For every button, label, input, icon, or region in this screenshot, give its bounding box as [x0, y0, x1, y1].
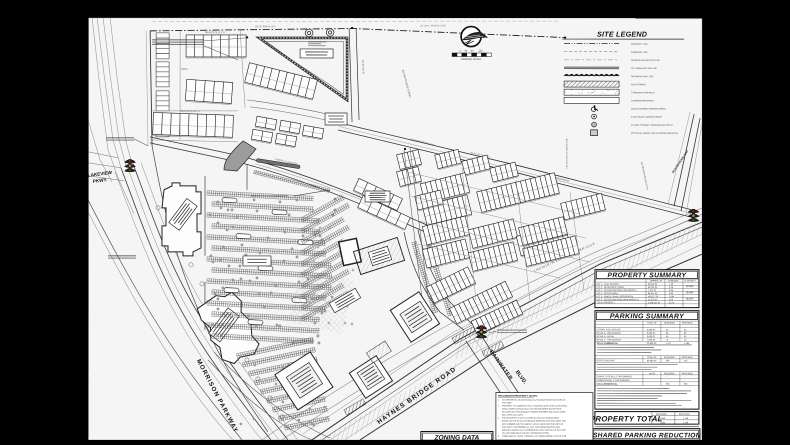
svg-text:18" CURB & GUTTER LINE: 18" CURB & GUTTER LINE — [631, 68, 657, 70]
svg-text:LOT 6 - DETENTION POND (AND: LOT 6 - DETENTION POND (AND AMENITY) — [596, 298, 639, 301]
svg-text:65,340 SF: 65,340 SF — [648, 284, 658, 286]
svg-text:RETAINING WALL LINE: RETAINING WALL LINE — [631, 75, 654, 78]
svg-text:STANDARD CONCRETE: STANDARD CONCRETE — [631, 91, 655, 94]
svg-text:TOWNS LOTS (ALL 2 CAR GARAGE): TOWNS LOTS (ALL 2 CAR GARAGE) — [596, 375, 632, 378]
svg-text:(E) SAN. SEWER ESMT: (E) SAN. SEWER ESMT — [420, 25, 447, 28]
svg-text:FUTURE COMPACT PARKING PER COU: FUTURE COMPACT PARKING PER COUNT — [631, 124, 674, 127]
svg-text:LOT 5 - SINGLE FAMILY RESIDE: LOT 5 - SINGLE FAMILY RESIDENTIAL — [596, 295, 634, 298]
svg-text:OFFICE BUILDING: OFFICE BUILDING — [596, 360, 614, 362]
svg-text:THE PROPERTY IS NOT LOCATED IN: THE PROPERTY IS NOT LOCATED IN A FLOOD H… — [502, 417, 560, 420]
svg-text:EASEMENT LINE: EASEMENT LINE — [631, 51, 648, 54]
svg-text:0 30 60 120: 0 30 60 120 — [460, 50, 484, 53]
svg-text:5,000 SF: 5,000 SF — [647, 329, 656, 331]
svg-text:SAID MAP IS SEPTEMBER 18, 2013: SAID MAP IS SEPTEMBER 18, 2013. THE DETE… — [502, 426, 561, 429]
svg-text:1,563: 1,563 — [660, 422, 666, 424]
svg-text:PROVIDED: PROVIDED — [679, 414, 690, 416]
svg-text:FACILITIES AND LINES.: FACILITIES AND LINES. — [502, 414, 524, 417]
svg-text:POTENTIAL SPACE FOR OUTDOOR AM: POTENTIAL SPACE FOR OUTDOOR AMENITIES — [631, 132, 678, 135]
svg-text:UNITS: UNITS — [649, 373, 656, 375]
svg-text:PARKING SUMMARY: PARKING SUMMARY — [610, 313, 685, 320]
svg-text:SHARED PARKING REDUCTION: SHARED PARKING REDUCTION — [593, 432, 701, 439]
svg-text:EV/EV READY PARKING SPACE: EV/EV READY PARKING SPACE — [631, 116, 663, 119]
svg-text:TERRACES (ALL 1 CAR GARAGE): TERRACES (ALL 1 CAR GARAGE) — [596, 379, 629, 382]
svg-text:1,563: 1,563 — [660, 418, 666, 420]
svg-text:PRIVATE ALLEY 'C': PRIVATE ALLEY 'C' — [180, 110, 201, 113]
svg-text:THERE ARE NO LAKES, STREAMS, O: THERE ARE NO LAKES, STREAMS, OR OTHER WA… — [502, 435, 567, 438]
svg-text:PRELIMINARY/PROPERTY NOTES:: PRELIMINARY/PROPERTY NOTES: — [498, 395, 538, 398]
svg-text:1,748: 1,748 — [683, 422, 689, 424]
svg-text:BASED ON THE FLOOD INSURANCE R: BASED ON THE FLOOD INSURANCE RATE MAP FO… — [502, 420, 567, 423]
svg-text:88,427 SF: 88,427 SF — [648, 293, 658, 295]
svg-text:30.4%: 30.4% — [686, 290, 694, 294]
svg-text:(E) R/W DEDICATION EXHIBIT: (E) R/W DEDICATION EXHIBIT — [565, 138, 568, 169]
svg-text:PRIVATE ALLEY 'A': PRIVATE ALLEY 'A' — [205, 31, 226, 34]
svg-text:1,748: 1,748 — [683, 418, 689, 420]
svg-text:23.75: 23.75 — [669, 302, 675, 304]
svg-text:UTILITIES AND THE PRIMARY POWE: UTILITIES AND THE PRIMARY POWER EASEMENT… — [502, 411, 566, 414]
svg-text:SETBACK AND BUFFER LINE: SETBACK AND BUFFER LINE — [631, 59, 660, 62]
svg-text:REQUIRED: REQUIRED — [656, 414, 667, 416]
svg-text:APPROX. SF: APPROX. SF — [650, 280, 663, 283]
svg-text:20' ALLEY 'B': 20' ALLEY 'B' — [361, 60, 365, 75]
svg-text:RETAIL B - RETAIL: RETAIL B - RETAIL — [596, 335, 615, 338]
svg-text:ADA ACCESSIBLE PARKING SPACE: ADA ACCESSIBLE PARKING SPACE — [631, 108, 667, 111]
svg-text:459,277 SF: 459,277 SF — [648, 296, 659, 298]
svg-text:PROVIDED: PROVIDED — [682, 373, 693, 375]
svg-text:10.54: 10.54 — [669, 296, 675, 298]
svg-text:GRAPHIC SCALE: GRAPHIC SCALE — [461, 58, 482, 61]
svg-text:TOTAL COMMERCIAL: TOTAL COMMERCIAL — [596, 342, 618, 345]
svg-text:LOT 2 - RETAIL/REST. AREA: LOT 2 - RETAIL/REST. AREA — [596, 286, 624, 289]
svg-text:1,018,127 SF: 1,018,127 SF — [648, 302, 661, 304]
svg-text:TOTAL PROPERTY: TOTAL PROPERTY — [596, 301, 615, 304]
svg-text:MADE BY GRAPHICALLY DETERMINI: MADE BY GRAPHICALLY DETERMINING THE POSI… — [502, 429, 567, 432]
svg-text:ON SAID FIRM MAPS UNLESS OTHER: ON SAID FIRM MAPS UNLESS OTHERWISE NOTED… — [502, 432, 550, 435]
svg-text:9,000 SF: 9,000 SF — [647, 336, 656, 338]
svg-text:1,185: 1,185 — [684, 343, 690, 345]
svg-text:SITE LEGEND: SITE LEGEND — [597, 30, 647, 39]
svg-text:7,371 SF: 7,371 SF — [648, 290, 657, 292]
svg-text:ACREAGE: ACREAGE — [668, 280, 679, 283]
svg-text:7,500 SF: 7,500 SF — [647, 340, 656, 342]
svg-text:15,279 SF: 15,279 SF — [648, 299, 658, 301]
svg-text:TOTAL SF: TOTAL SF — [647, 356, 657, 359]
svg-text:8,000 SF: 8,000 SF — [647, 333, 656, 335]
svg-text:REQUIRED: REQUIRED — [664, 373, 675, 375]
svg-text:OPEN: OPEN — [181, 69, 188, 71]
svg-text:20.8%: 20.8% — [686, 284, 694, 288]
svg-text:LOT 3 - DETENTION POND (ON-P: LOT 3 - DETENTION POND (ON-PARCEL) — [596, 289, 636, 292]
svg-text:% DENSITY: % DENSITY — [684, 281, 696, 283]
svg-text:ADA STRIPING: ADA STRIPING — [631, 83, 646, 86]
svg-text:STRUCTURES OR BUILDINGS ON THE: STRUCTURES OR BUILDINGS ON THE PROPERTY … — [502, 409, 562, 411]
svg-text:29,500 SF: 29,500 SF — [647, 343, 657, 345]
svg-text:PROVIDED: PROVIDED — [682, 323, 693, 325]
svg-text:PROVIDED: PROVIDED — [682, 357, 693, 359]
svg-text:RETAIL A - RESTAURANT: RETAIL A - RESTAURANT — [596, 332, 621, 335]
svg-text:6-STORY FUEL SERVICE: 6-STORY FUEL SERVICE — [596, 329, 621, 331]
svg-text:84,000 SF: 84,000 SF — [647, 360, 657, 362]
svg-text:LOT 4 - OFFICE AREA: LOT 4 - OFFICE AREA — [596, 292, 618, 295]
svg-text:(E) 20' R/W ALLEY: (E) 20' R/W ALLEY — [255, 25, 276, 28]
svg-text:TOTAL RESIDENTIAL: TOTAL RESIDENTIAL — [596, 383, 618, 386]
svg-text:99,752 SF: 99,752 SF — [648, 287, 658, 289]
svg-text:48.8%: 48.8% — [686, 297, 694, 301]
svg-text:STANDARD PAVEMENT: STANDARD PAVEMENT — [631, 99, 655, 102]
svg-text:PROPERTY IS CURRENTLY FULLY UN: PROPERTY IS CURRENTLY FULLY UNDEVELOPED … — [502, 406, 568, 408]
svg-text:THIS TIME.: THIS TIME. — [502, 403, 513, 405]
svg-text:PROPERTY LINE: PROPERTY LINE — [631, 44, 648, 46]
svg-text:RETAIL C - RESTAURANT: RETAIL C - RESTAURANT — [596, 339, 622, 342]
svg-text:1,117: 1,117 — [666, 343, 672, 345]
svg-text:LOT 1 - FUEL STATION: LOT 1 - FUEL STATION — [596, 283, 619, 286]
svg-text:ZONING DATA: ZONING DATA — [433, 435, 479, 440]
svg-text:NO DERIVATION OF ADDITIONAL RI: NO DERIVATION OF ADDITIONAL RIGHT-OF-WAY… — [502, 399, 566, 402]
svg-text:TOTAL SF: TOTAL SF — [647, 322, 657, 325]
svg-text:MAP NUMBER FOR THIS AREA IS 13: MAP NUMBER FOR THIS AREA IS 13121C0343F … — [502, 423, 564, 426]
svg-text:PROPERTY SUMMARY: PROPERTY SUMMARY — [608, 272, 688, 279]
svg-text:REQUIRED: REQUIRED — [664, 323, 675, 325]
svg-text:REQUIRED: REQUIRED — [664, 357, 675, 359]
